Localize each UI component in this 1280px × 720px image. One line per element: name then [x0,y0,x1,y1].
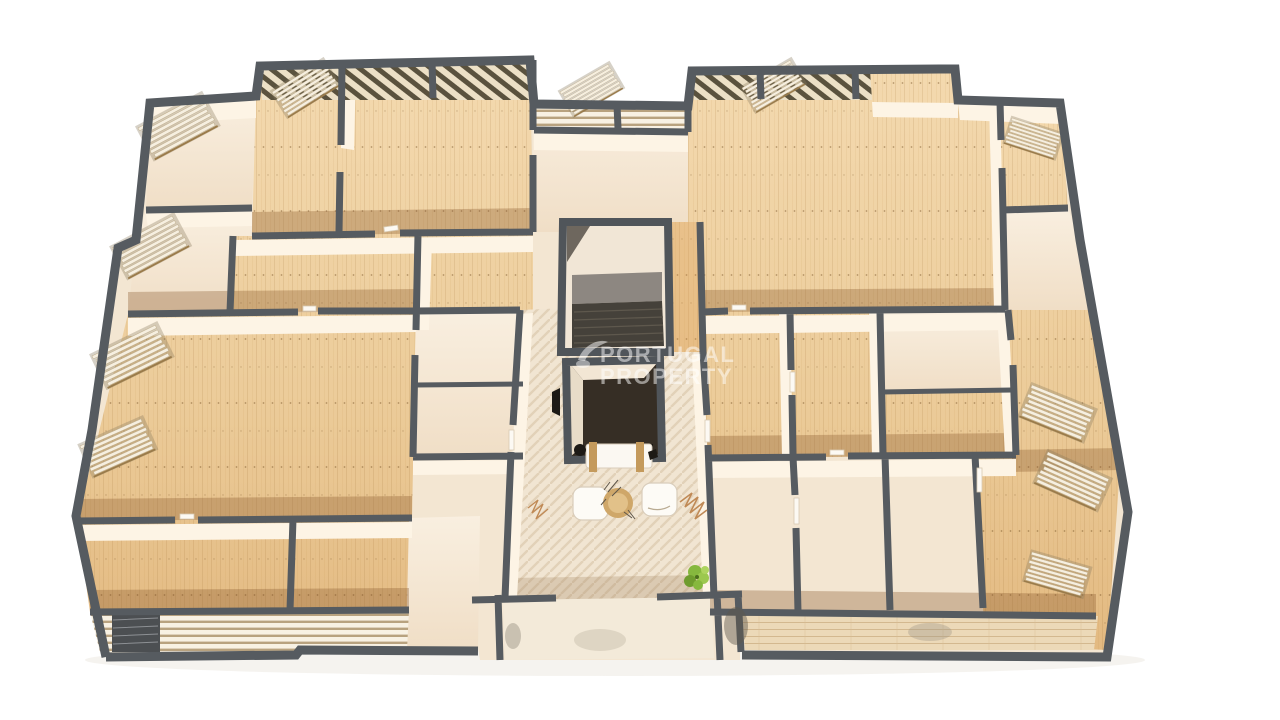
watermark: PORTUGAL PROPERTY [576,341,735,389]
door-frame-nub [552,388,560,416]
stair-core [552,222,670,460]
bench-leg [636,442,644,472]
pier-shadow [505,623,521,649]
wall-hook [574,444,586,456]
stair-landing [572,272,662,304]
building-floorplan: PORTUGAL PROPERTY [0,0,1280,720]
terrace-shadow [574,629,626,651]
bench-leg [589,442,597,472]
deck-stain [908,623,952,641]
coffee-table-top [608,493,628,513]
terrace-slab [503,597,714,660]
elevator-wall-face-left [570,364,583,456]
pier-shadow [724,607,748,645]
armchair-right [642,483,677,516]
floorplan-render-canvas: PORTUGAL PROPERTY [0,0,1280,720]
watermark-logo-dot [576,360,590,368]
watermark-line2: PROPERTY [600,364,733,389]
